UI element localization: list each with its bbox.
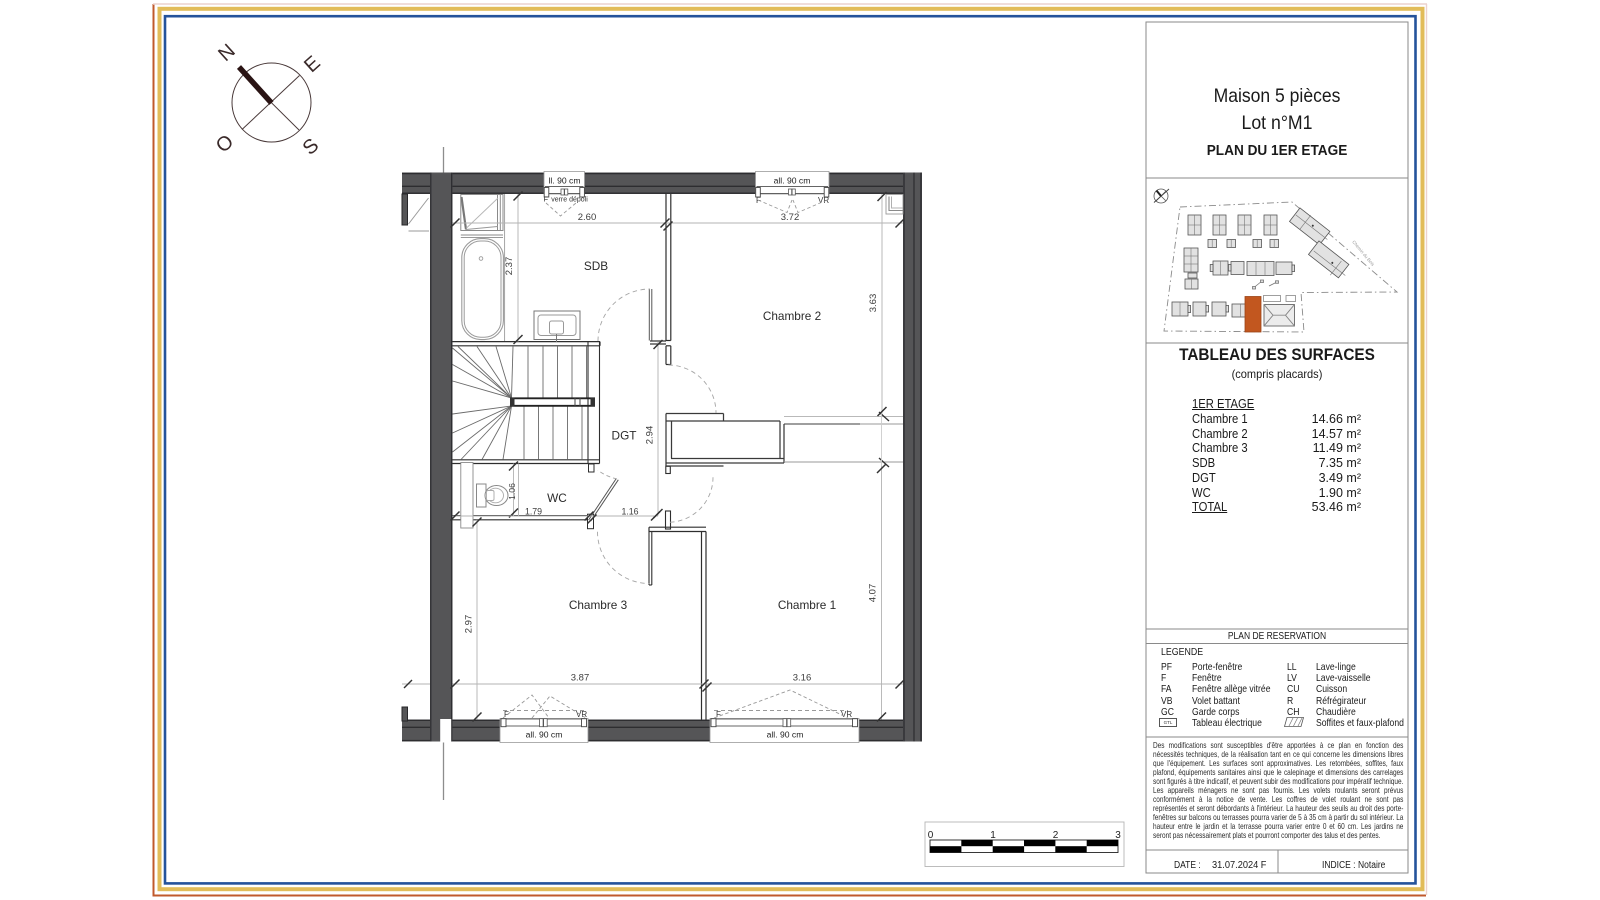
svg-text:3.16: 3.16 [793,673,812,684]
svg-text:1.06: 1.06 [507,483,517,500]
svg-text:3: 3 [1115,830,1121,841]
svg-text:3.72: 3.72 [781,212,800,223]
svg-text:ll. 90 cm: ll. 90 cm [549,176,581,186]
svg-text:Chambre 3: Chambre 3 [569,598,628,612]
svg-text:2.60: 2.60 [578,212,597,223]
svg-text:all. 90 cm: all. 90 cm [526,730,563,740]
svg-text:0: 0 [928,830,934,841]
svg-text:Chambre 2: Chambre 2 [763,309,821,323]
svg-text:2.37: 2.37 [504,257,515,276]
svg-text:Chambre 1: Chambre 1 [778,598,836,612]
svg-text:DGT: DGT [612,429,637,443]
svg-text:F: F [504,710,509,719]
svg-text:4.07: 4.07 [868,584,879,603]
svg-text:N: N [214,40,239,66]
svg-text:2: 2 [1053,830,1059,841]
svg-text:1: 1 [990,830,996,841]
svg-text:1.79: 1.79 [525,507,542,517]
svg-text:1.16: 1.16 [621,507,638,517]
svg-text:all. 90 cm: all. 90 cm [767,730,804,740]
svg-text:3.63: 3.63 [868,294,879,313]
svg-text:O: O [212,131,238,158]
svg-text:F: F [544,195,549,204]
svg-text:F: F [716,710,721,719]
svg-text:VR: VR [576,710,587,719]
svg-text:2.97: 2.97 [464,615,475,634]
svg-text:VR: VR [818,196,829,205]
svg-text:all. 90 cm: all. 90 cm [774,176,811,186]
svg-text:WC: WC [547,491,567,505]
svg-text:E: E [300,52,325,77]
svg-text:3.87: 3.87 [571,673,590,684]
svg-text:2.94: 2.94 [645,426,656,445]
svg-text:SDB: SDB [584,259,608,273]
svg-text:verre dépoli: verre dépoli [551,197,588,204]
svg-text:S: S [299,134,324,159]
